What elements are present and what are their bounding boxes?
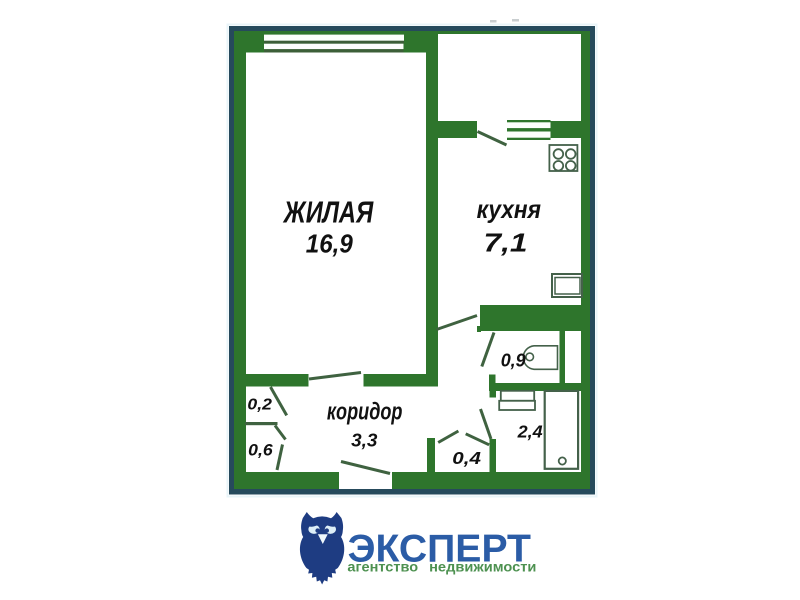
svg-text:недвижимости: недвижимости — [429, 559, 536, 575]
svg-text:кухня: кухня — [477, 196, 542, 224]
svg-text:16,9: 16,9 — [306, 229, 353, 259]
svg-text:7,1: 7,1 — [484, 228, 528, 258]
svg-text:0,6: 0,6 — [248, 441, 273, 460]
svg-text:0,4: 0,4 — [452, 448, 481, 468]
svg-text:2,4: 2,4 — [517, 422, 543, 442]
svg-text:ЖИЛАЯ: ЖИЛАЯ — [282, 195, 374, 230]
svg-text:коридор: коридор — [327, 399, 403, 426]
svg-text:0,9: 0,9 — [501, 350, 526, 370]
svg-text:3,3: 3,3 — [351, 430, 378, 451]
svg-text:агентство: агентство — [347, 559, 418, 575]
svg-text:0,2: 0,2 — [247, 396, 272, 413]
